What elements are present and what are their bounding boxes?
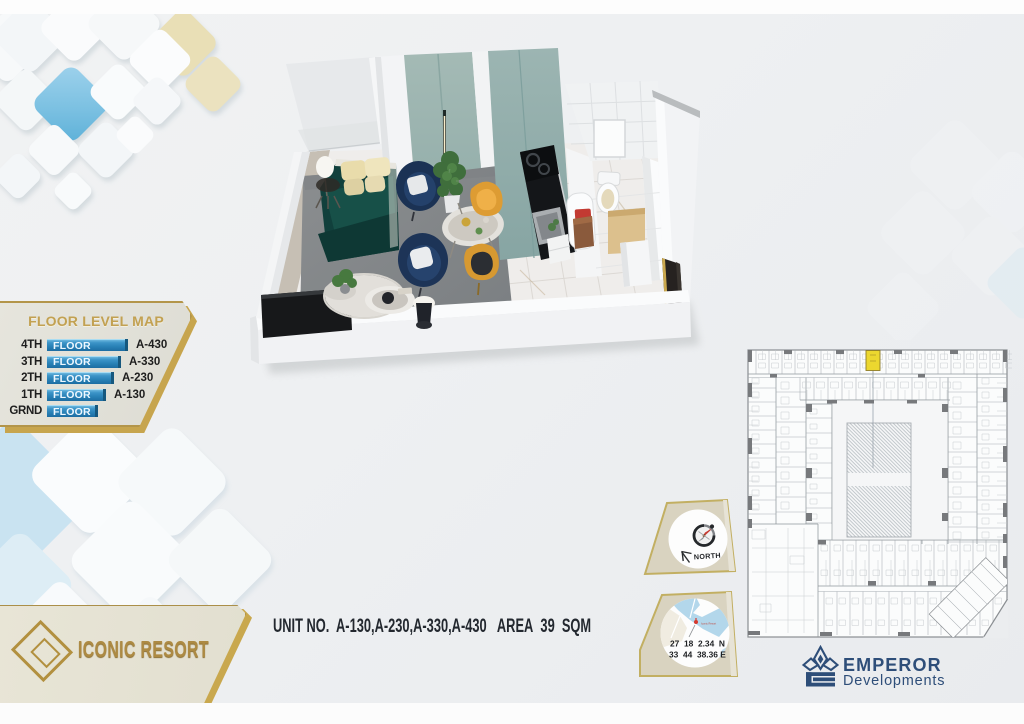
svg-text:NORTH: NORTH (694, 551, 722, 562)
svg-text:27 18 2.34 N: 27 18 2.34 N (670, 639, 725, 649)
svg-text:Iconic Resort: Iconic Resort (701, 622, 716, 626)
svg-text:33 44 38.36 E: 33 44 38.36 E (669, 650, 726, 660)
